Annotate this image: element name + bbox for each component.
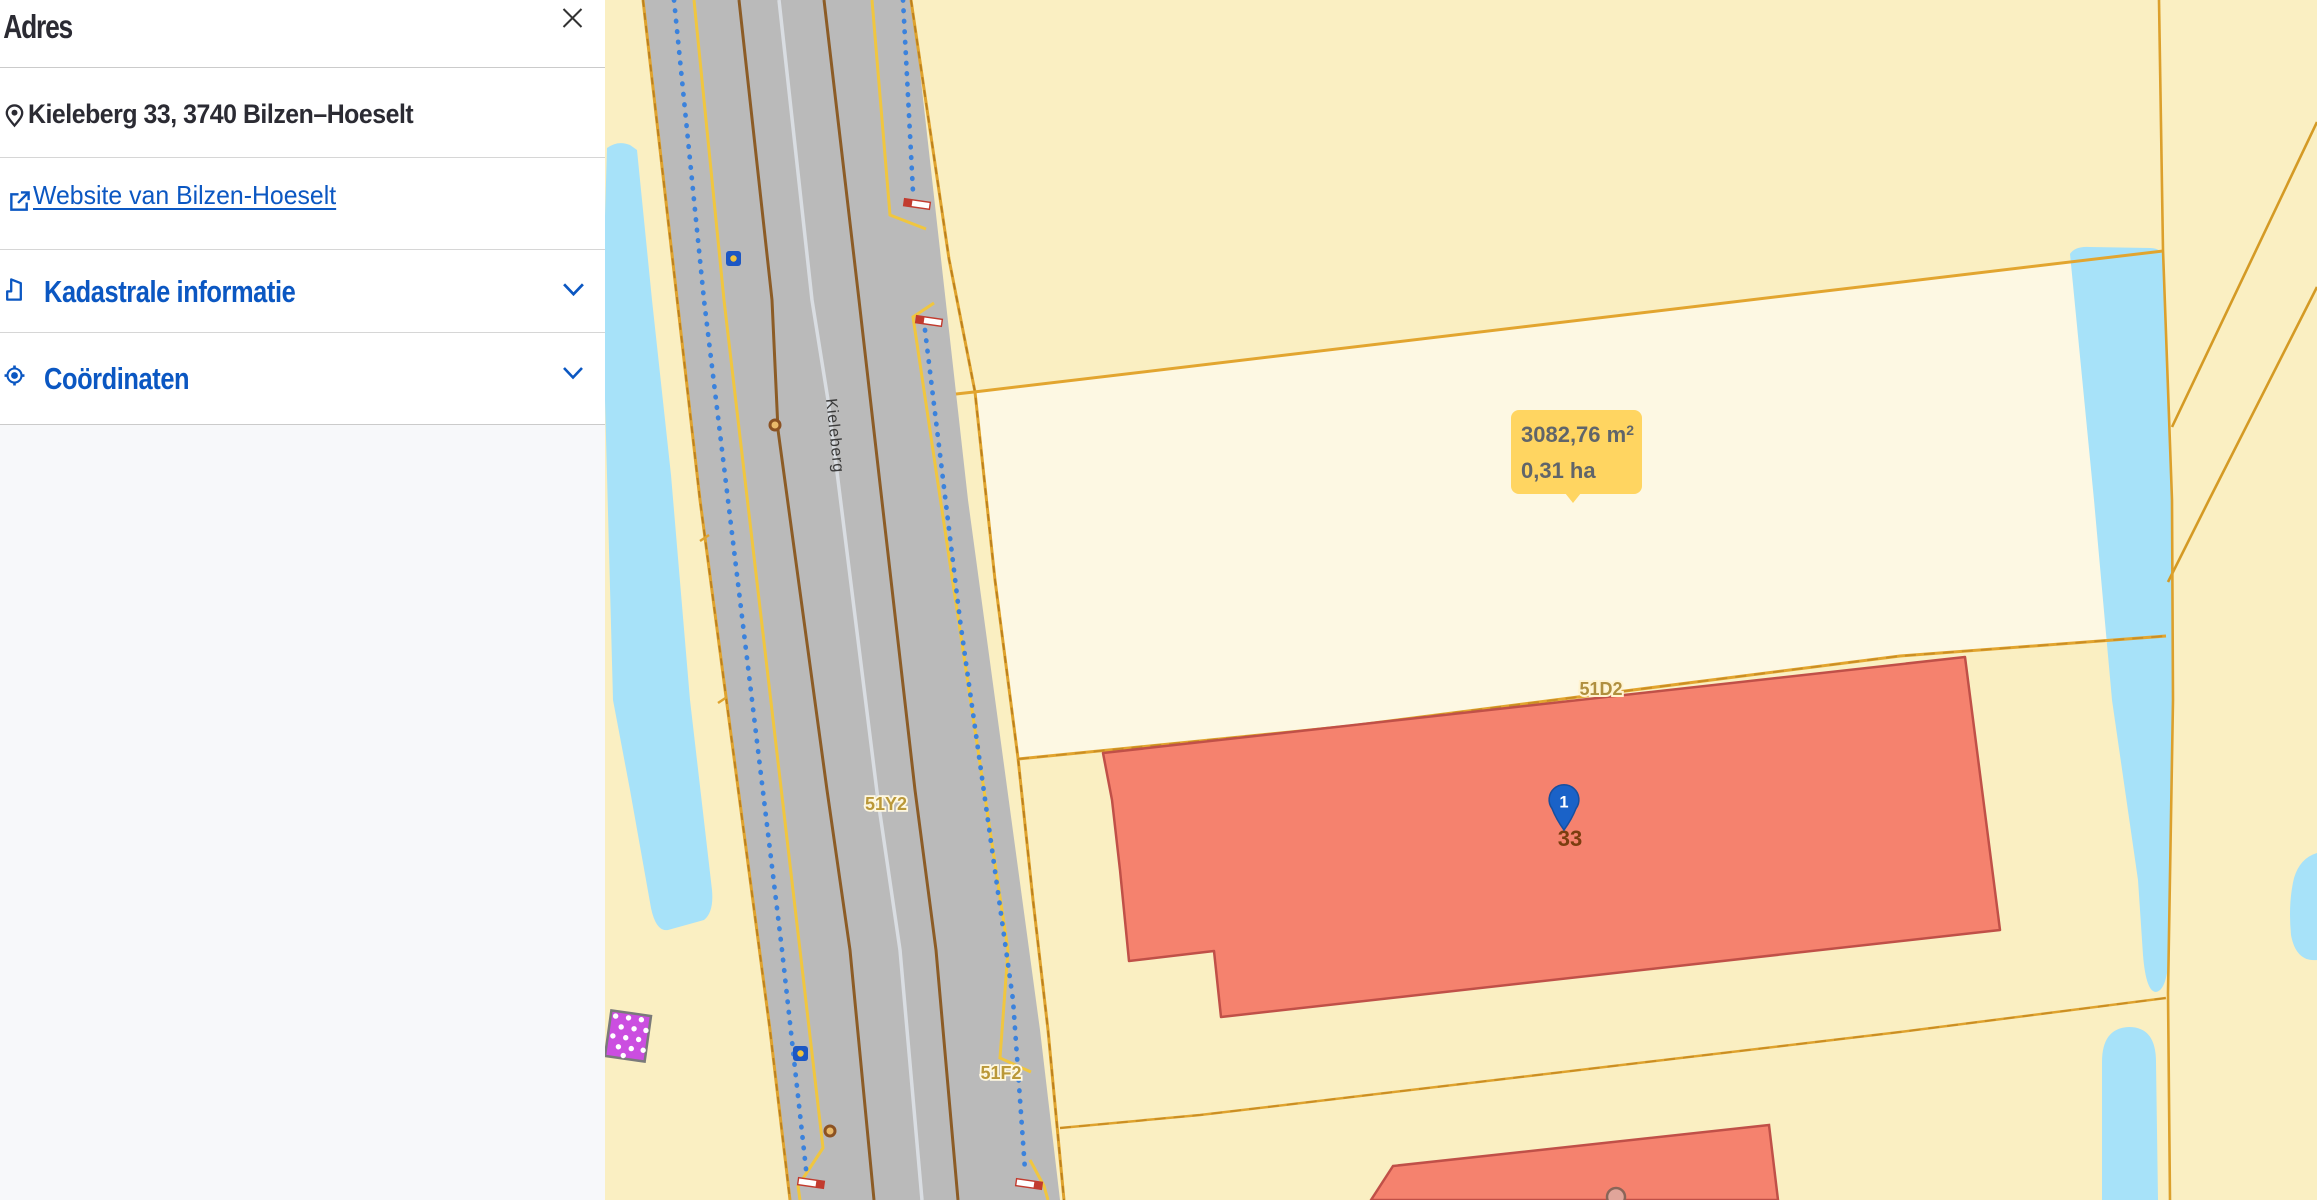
svg-text:51D2: 51D2 — [1579, 679, 1622, 699]
svg-text:51F2: 51F2 — [980, 1063, 1021, 1083]
svg-text:0,31 ha: 0,31 ha — [1521, 458, 1596, 483]
svg-text:33: 33 — [1558, 826, 1582, 851]
svg-text:1: 1 — [1559, 794, 1568, 812]
svg-text:3082,76 m2: 3082,76 m2 — [1521, 422, 1634, 447]
svg-text:51Y2: 51Y2 — [865, 794, 907, 814]
